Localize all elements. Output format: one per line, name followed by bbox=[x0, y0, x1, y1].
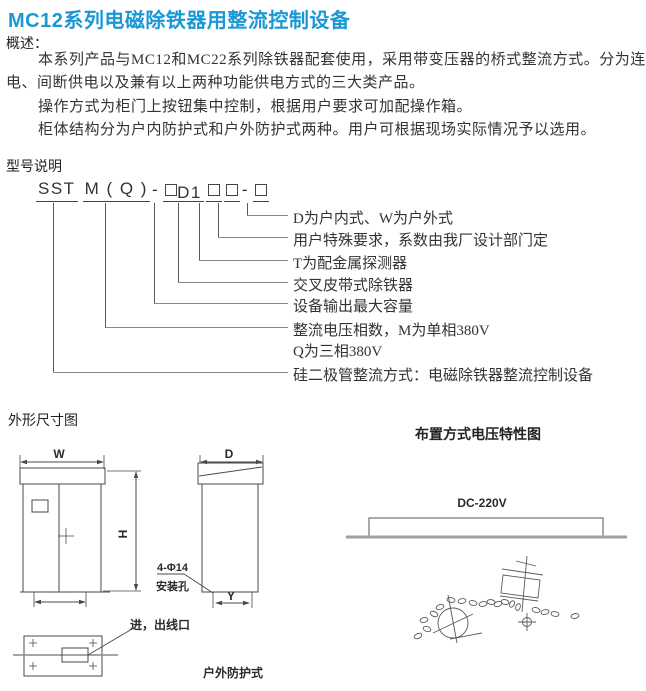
model-code-box-special bbox=[224, 184, 240, 202]
height-dimension-label: H bbox=[116, 530, 130, 539]
leader-line bbox=[218, 237, 288, 238]
leader-line bbox=[154, 303, 288, 304]
model-code-box-capacity: D1 bbox=[163, 184, 204, 202]
bottom-view bbox=[13, 629, 132, 676]
leader-line bbox=[53, 372, 288, 373]
page-title: MC12系列电磁除铁器用整流控制设备 bbox=[8, 4, 350, 33]
model-code-dash: - bbox=[240, 180, 251, 202]
model-code-dash: - bbox=[150, 180, 161, 202]
leader-line bbox=[178, 282, 288, 283]
model-callout: Q为三相380V bbox=[293, 340, 382, 361]
model-code: SST M ( Q ) - D1 - bbox=[36, 179, 269, 202]
dimensions-heading: 外形尺寸图 bbox=[8, 410, 78, 430]
model-code-mq: M ( Q ) bbox=[83, 179, 150, 202]
overview-line: 柜体结构分为户内防护式和户外防护式两种。用户可根据现场实际情况予以选用。 bbox=[38, 118, 596, 139]
mount-hole-label: 4-Φ14 bbox=[157, 562, 189, 574]
leader-line bbox=[199, 260, 288, 261]
width-dimension-label: W bbox=[53, 447, 65, 461]
model-callout: 交叉皮带式除铁器 bbox=[293, 274, 413, 295]
overview-line: 电、间断供电以及兼有以上两种功能供电方式的三大类产品。 bbox=[6, 71, 425, 92]
leader-line bbox=[247, 203, 248, 215]
model-callout: 设备输出最大容量 bbox=[293, 295, 413, 316]
model-callout: 用户特殊要求，系数由我厂设计部门定 bbox=[293, 229, 548, 250]
layout-diagram-heading: 布置方式电压特性图 bbox=[415, 424, 541, 444]
depth-dimension-label: D bbox=[225, 447, 234, 461]
model-code-box-enclosure bbox=[253, 184, 269, 202]
model-callout: 整流电压相数，M为单相380V bbox=[293, 319, 490, 340]
outdoor-type-label: 户外防护式 bbox=[203, 664, 263, 681]
foot-dimension-label: Y bbox=[227, 589, 235, 603]
leader-line bbox=[199, 203, 200, 260]
leader-line bbox=[154, 203, 155, 303]
belt-pulley-sketch bbox=[413, 556, 579, 643]
model-code-sst: SST bbox=[36, 179, 78, 202]
datasheet-page: MC12系列电磁除铁器用整流控制设备 概述： 本系列产品与MC12和MC22系列… bbox=[0, 0, 646, 691]
overview-line: 本系列产品与MC12和MC22系列除铁器配套使用，采用带变压器的桥式整流方式。分… bbox=[38, 48, 646, 69]
leader-line bbox=[53, 203, 54, 372]
dimension-drawing: W H D Y 4-Φ14 安装孔 bbox=[0, 440, 340, 691]
leader-line bbox=[247, 215, 288, 216]
leader-line bbox=[218, 203, 219, 237]
model-heading: 型号说明 bbox=[6, 156, 62, 176]
suspended-magnet-block bbox=[369, 518, 603, 537]
model-callout: D为户内式、W为户外式 bbox=[293, 207, 453, 228]
overview-line: 操作方式为柜门上按钮集中控制，根据用户要求可加配操作箱。 bbox=[38, 95, 472, 116]
inlet-outlet-label: 进，出线口 bbox=[130, 616, 190, 633]
model-callout: T为配金属探测器 bbox=[293, 252, 407, 273]
model-callout: 硅二极管整流方式：电磁除铁器整流控制设备 bbox=[293, 364, 593, 385]
model-diagram: SST M ( Q ) - D1 - D为户内式、W为户外式 用户特殊要求，系数… bbox=[0, 175, 646, 390]
leader-line bbox=[105, 203, 106, 327]
leader-line bbox=[178, 203, 179, 282]
mount-hole-label: 安装孔 bbox=[156, 579, 189, 593]
leader-line bbox=[105, 327, 288, 328]
model-code-box-detector bbox=[206, 184, 222, 202]
layout-diagram: DC-220V bbox=[330, 490, 646, 691]
voltage-label: DC-220V bbox=[457, 496, 506, 510]
model-code-d1: D1 bbox=[177, 183, 202, 202]
